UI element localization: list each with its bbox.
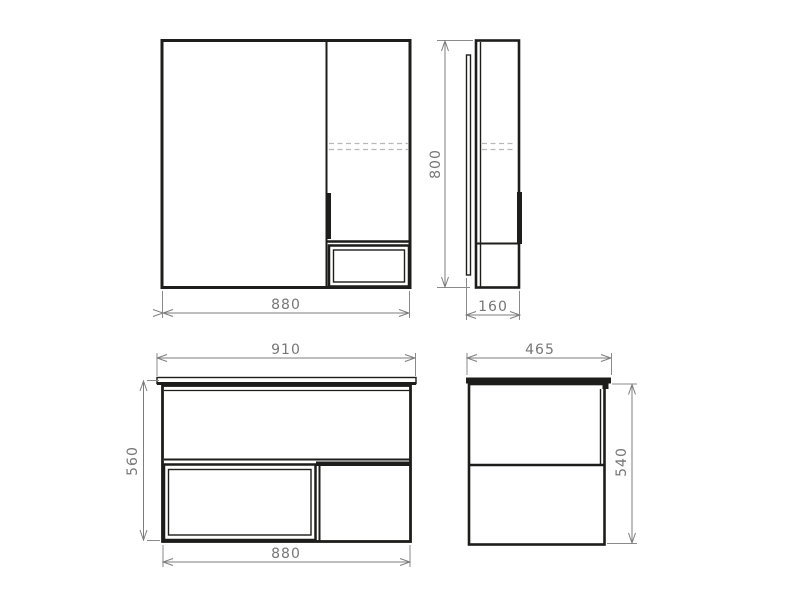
dimension-mirror-side-depth: 160 [466,278,520,320]
dimension-mirror-front-width: 880 [163,291,410,318]
side-door-handle [517,192,522,244]
open-shelf-outer-frame [329,246,409,287]
dimension-label-countertop-width: 910 [271,342,301,358]
vanity-unit-front-view: 910 560 880 [125,342,416,567]
side-cabinet-outline [476,41,519,288]
dimension-vanity-countertop-width: 910 [157,342,416,376]
mirror-door-panel-side [467,55,471,275]
dimension-vanity-side-height: 540 [607,384,637,544]
dimension-label-vanity-depth: 465 [525,342,555,358]
dimension-label-vanity-side-height: 540 [614,447,630,477]
cabinet-door-handle [326,193,331,239]
drawing-svg: 880 800 160 [0,0,800,600]
dimension-vanity-side-depth: 465 [467,342,612,375]
mirror-cabinet-front-view: 880 [162,41,410,319]
dimension-label-vanity-height: 560 [125,446,141,476]
dimension-vanity-front-height: 560 [125,381,160,541]
countertop-side-slab [466,378,611,384]
dimension-vanity-body-width: 880 [163,545,410,567]
open-shelf-inner-frame [334,250,405,282]
open-compartment-inner-frame [169,470,312,536]
dimension-label-mirror-depth: 160 [478,299,508,315]
right-drawer-handle-groove [316,462,411,467]
technical-drawing-canvas: 880 800 160 [0,0,800,600]
dimension-label-mirror-height: 800 [428,149,444,179]
open-compartment-outer-frame [164,465,316,541]
vanity-unit-side-view: 465 540 [466,342,637,545]
dimension-label-vanity-width: 880 [271,546,301,562]
dimension-label-mirror-width: 880 [271,297,301,313]
mirror-cabinet-side-view: 800 160 [428,41,522,321]
